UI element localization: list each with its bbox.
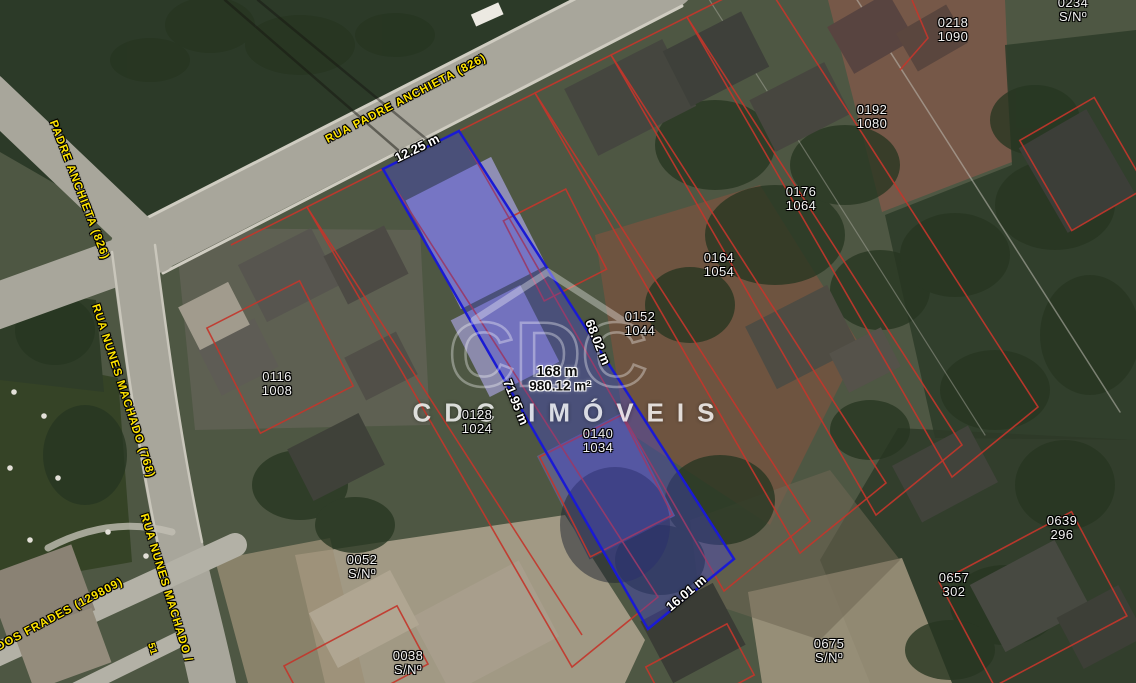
satellite-map-viewport[interactable]: CDC CDC IMÓVEIS RUA PADRE ANCHIETA (826)…: [0, 0, 1136, 683]
satellite-imagery: [0, 0, 1136, 683]
